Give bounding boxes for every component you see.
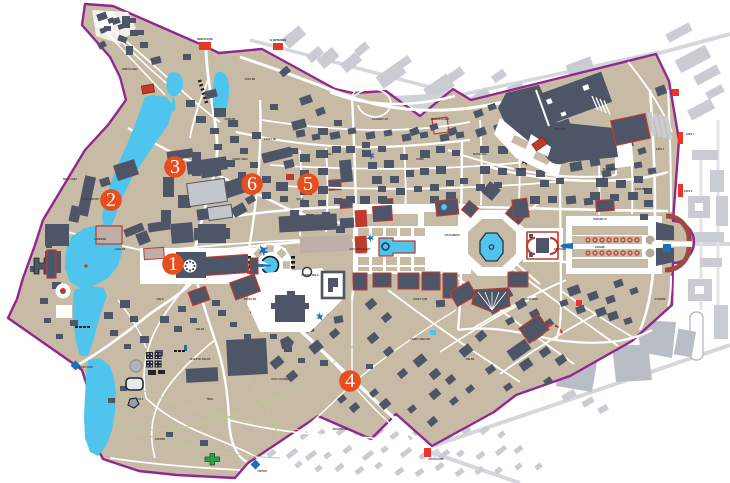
svg-text:GROUNDS: GROUNDS [554,248,567,251]
svg-text:CHAPEL WALK: CHAPEL WALK [301,274,319,277]
svg-text:WEST GATE: WEST GATE [79,366,93,369]
svg-text:N. ENTRANCE: N. ENTRANCE [270,39,287,42]
svg-text:ATHLETIC FIELDS: ATHLETIC FIELDS [190,358,211,361]
svg-text:CADET AREA: CADET AREA [232,158,248,161]
svg-text:FIELDS: FIELDS [466,358,475,361]
svg-text:AIR GARDEN: AIR GARDEN [444,234,459,237]
svg-text:AIR GARDEN WAY: AIR GARDEN WAY [349,248,370,251]
svg-text:CADET AREA RD: CADET AREA RD [410,338,430,341]
svg-text:NORTH GATE: NORTH GATE [197,38,213,41]
svg-text:1: 1 [168,253,178,275]
svg-text:HALL: HALL [327,153,334,156]
svg-text:QUAD: QUAD [296,198,303,201]
svg-text:LAKESIDE: LAKESIDE [94,238,106,241]
svg-text:GATE RD: GATE RD [245,78,256,81]
svg-text:PARADE LP: PARADE LP [593,218,607,221]
svg-text:SIJAN HALL: SIJAN HALL [473,153,488,156]
svg-text:3: 3 [170,156,180,178]
svg-text:PARKING: PARKING [225,118,236,121]
svg-text:TRAIL: TRAIL [206,398,214,401]
svg-text:GATE 1: GATE 1 [686,133,695,136]
svg-text:VISITOR: VISITOR [257,470,267,473]
svg-text:TERRAZZO WAY: TERRAZZO WAY [431,118,450,121]
svg-text:5: 5 [303,173,313,195]
svg-text:ACADEMY DR: ACADEMY DR [372,118,388,121]
svg-text:ATHLETIC DR: ATHLETIC DR [332,428,348,431]
svg-text:2: 2 [106,189,116,211]
svg-text:DORM RD: DORM RD [514,168,526,171]
svg-text:LAKE DR: LAKE DR [115,248,126,251]
svg-text:STADIUM: STADIUM [655,298,666,301]
svg-text:DOUGLASS DR: DOUGLASS DR [81,198,99,201]
svg-text:COURSE: COURSE [155,438,166,441]
svg-text:PARADE: PARADE [595,246,605,249]
svg-text:EAST RD: EAST RD [635,188,646,191]
svg-text:4: 4 [345,370,355,392]
svg-text:GATE 3: GATE 3 [684,190,693,193]
svg-text:SOUTH GATE: SOUTH GATE [428,458,444,461]
svg-text:FIELDS: FIELDS [196,328,205,331]
svg-text:GOLF: GOLF [137,398,144,401]
svg-text:PREP SCHOOL: PREP SCHOOL [521,298,539,301]
svg-text:DORM: DORM [416,158,423,161]
svg-text:6: 6 [247,173,257,195]
svg-text:TERRAZZO: TERRAZZO [553,128,566,131]
svg-text:NORTH AREA: NORTH AREA [122,68,138,71]
svg-text:WEST AREA: WEST AREA [63,178,78,181]
svg-text:STADIUM DR: STADIUM DR [603,168,618,171]
svg-text:CADET GYM: CADET GYM [413,298,427,301]
svg-text:GOLF COURSE: GOLF COURSE [271,378,289,381]
svg-text:FIELD: FIELD [157,298,164,301]
svg-text:SOUTH RD: SOUTH RD [244,298,257,301]
svg-text:GATE 2: GATE 2 [656,148,665,151]
svg-text:CADET DR: CADET DR [264,138,277,141]
